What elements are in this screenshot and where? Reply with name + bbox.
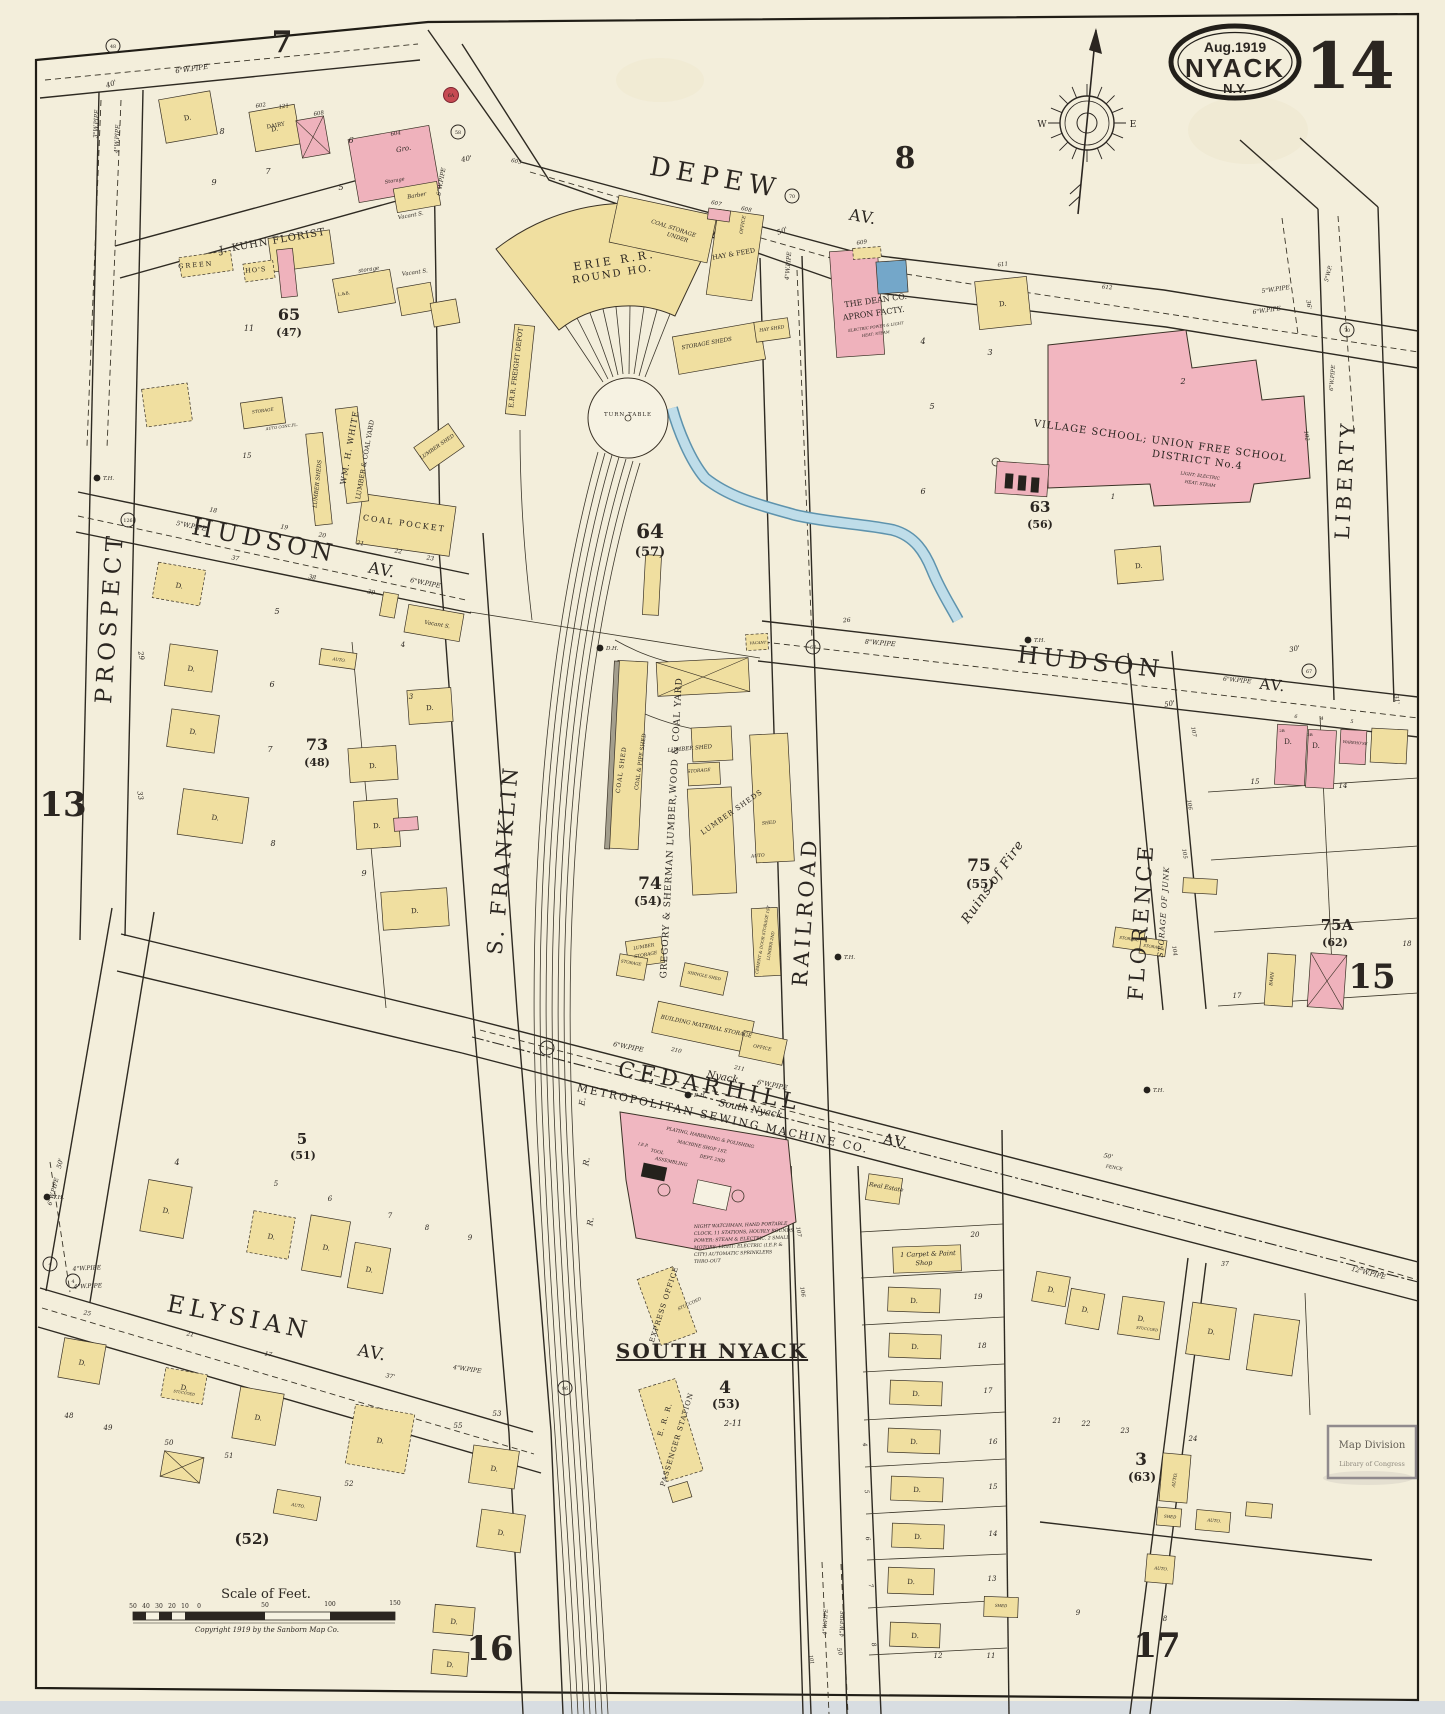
map-label: 4: [719, 1378, 731, 1398]
building-footprint: [1017, 475, 1026, 491]
map-label: 20: [970, 1231, 980, 1239]
paper-stain: [616, 58, 704, 102]
map-label: 14: [1339, 782, 1348, 790]
map-label: 2-11: [723, 1419, 742, 1428]
map-label: 11: [987, 1652, 996, 1660]
map-label: 53: [493, 1410, 502, 1418]
map-label: D.: [910, 1297, 918, 1305]
map-label: D.: [78, 1358, 87, 1367]
map-label: D.: [913, 1486, 921, 1494]
scale-label: Scale of Feet.: [221, 1587, 311, 1602]
svg-text:D.H.: D.H.: [605, 646, 619, 652]
svg-text:70: 70: [789, 194, 795, 200]
map-label: D.: [369, 762, 377, 771]
building-footprint: [853, 247, 882, 260]
svg-text:T.H.: T.H.: [1034, 638, 1045, 644]
map-label: 4: [1319, 716, 1323, 722]
map-label: D.: [911, 1632, 919, 1640]
map-label: Shop: [915, 1259, 933, 1268]
map-label: 8: [219, 127, 224, 136]
map-label: D.: [490, 1465, 499, 1474]
map-label: 7: [272, 25, 293, 60]
map-label: 37: [231, 554, 240, 562]
turntable: [588, 378, 668, 458]
map-label: THRO-OUT: [694, 1258, 722, 1265]
map-label: 21: [355, 539, 365, 547]
map-label: 14: [989, 1530, 998, 1538]
map-label: 22: [1081, 1420, 1091, 1428]
map-label: R.: [585, 1217, 596, 1228]
map-label: D.: [267, 1232, 276, 1241]
map-label: VACANT: [749, 640, 766, 646]
map-label: 24: [1188, 1435, 1198, 1443]
building-footprint: [430, 299, 460, 327]
map-label: 1: [1111, 493, 1115, 501]
map-label: 0: [197, 1603, 201, 1610]
map-label: 5: [297, 1130, 307, 1148]
map-label: 10: [181, 1603, 189, 1610]
map-label: 9: [361, 869, 366, 878]
building-footprint: [1030, 477, 1039, 493]
map-label: 2B: [1307, 732, 1313, 737]
map-label: 18: [209, 506, 218, 514]
building-footprint: [1004, 473, 1013, 489]
map-label: 63: [1030, 498, 1051, 516]
stamp-subtitle: Library of Congress: [1339, 1460, 1405, 1468]
map-label: 20: [168, 1603, 176, 1610]
building-footprint: [876, 260, 908, 294]
map-label: 40: [142, 1603, 150, 1610]
svg-text:T.H.: T.H.: [1153, 1088, 1164, 1094]
map-label: 6: [348, 136, 353, 145]
map-label: (62): [1322, 936, 1348, 949]
map-label: D.: [1312, 742, 1320, 750]
map-label: 9: [468, 1234, 473, 1242]
building-footprint: [687, 787, 736, 895]
map-label: 75: [967, 856, 991, 876]
svg-text:70: 70: [1344, 328, 1350, 334]
map-label: D.: [1047, 1285, 1056, 1294]
map-label: D.: [912, 1390, 920, 1398]
map-label: D.: [1135, 562, 1143, 571]
map-label: E.: [577, 1097, 587, 1108]
building-footprint: [656, 658, 750, 697]
map-label: 11: [244, 324, 254, 333]
map-label: 150: [389, 1600, 401, 1607]
map-label: 38: [308, 573, 317, 581]
map-label: 12: [934, 1652, 943, 1660]
svg-text:6A: 6A: [448, 93, 455, 99]
map-label: 6: [920, 487, 925, 496]
map-label: SHED: [995, 1603, 1008, 1608]
building-footprint: [296, 116, 330, 158]
svg-text:67: 67: [1306, 669, 1312, 675]
map-label: D.: [497, 1529, 506, 1538]
map-label: 51: [225, 1452, 234, 1460]
building-footprint: [397, 282, 435, 315]
map-label: D.: [999, 300, 1007, 309]
map-label: 55: [454, 1422, 463, 1430]
hydrant-symbol: D.H.: [685, 1092, 707, 1099]
map-label: 3: [409, 693, 414, 701]
hydrant-symbol: T.H.: [94, 475, 115, 482]
svg-text:48: 48: [110, 44, 116, 50]
map-label: 13: [988, 1575, 997, 1583]
map-label: 26: [842, 617, 851, 625]
compass-west-label: W: [1037, 120, 1047, 130]
fire-alarm-box-symbol: 6A: [444, 88, 459, 103]
map-label: 6: [269, 680, 274, 689]
svg-text:58: 58: [455, 130, 461, 136]
map-label: 39: [367, 588, 376, 596]
map-label: D.: [270, 124, 278, 133]
map-label: D.: [910, 1438, 918, 1446]
building-footprint: [1306, 729, 1337, 788]
map-label: 16: [466, 1629, 513, 1669]
svg-text:3: 3: [545, 1046, 548, 1052]
map-label: D.: [183, 113, 192, 122]
map-label: 65: [278, 305, 300, 324]
map-label: D.: [1284, 738, 1292, 746]
map-label: 7: [388, 1212, 393, 1220]
map-label: 23: [1120, 1427, 1130, 1435]
map-label: 15: [1348, 957, 1395, 997]
map-label: D.: [907, 1578, 915, 1586]
building-footprint: [394, 817, 419, 832]
map-label: 8: [1163, 1615, 1168, 1623]
map-label: 17: [264, 1350, 273, 1358]
map-label: 9: [1076, 1609, 1081, 1617]
map-label: 64: [636, 519, 664, 543]
building-footprint: [691, 726, 733, 762]
map-label: D.: [211, 814, 220, 823]
map-label: 15: [1251, 778, 1260, 786]
map-label: (57): [635, 545, 665, 560]
map-label: D.: [411, 907, 419, 916]
map-label: D.: [322, 1243, 331, 1252]
map-label: (47): [276, 326, 302, 339]
map-label: 75A: [1321, 916, 1354, 934]
map-label: D.: [914, 1533, 922, 1541]
map-label: 5: [1350, 719, 1353, 725]
map-label: 21: [185, 1330, 195, 1338]
map-label: 4: [919, 337, 925, 346]
map-label: 3: [987, 348, 992, 357]
map-state: N.Y.: [1223, 81, 1247, 96]
map-label: 3: [1135, 1450, 1147, 1470]
compass-east-label: E: [1130, 120, 1137, 130]
scan-edge-strip: [0, 1701, 1445, 1714]
hydrant-symbol: T.H.: [1025, 637, 1046, 644]
map-label: 37: [1221, 1261, 1229, 1268]
building-footprint: [1274, 724, 1307, 785]
map-label: D.: [446, 1661, 454, 1670]
map-label: 74: [638, 874, 662, 894]
map-label: 5: [338, 183, 343, 192]
map-label: 48: [64, 1412, 74, 1420]
map-label: 5: [274, 607, 279, 616]
map-label: TURN TABLE: [604, 412, 652, 418]
map-label: D.: [376, 1436, 385, 1445]
map-label: 612: [1102, 285, 1113, 292]
building-footprint: [1370, 728, 1408, 764]
svg-text:T.H.: T.H.: [844, 955, 855, 961]
map-label: D.: [1137, 1315, 1146, 1324]
map-label: SOUTH NYACK: [616, 1339, 808, 1363]
building-footprint: [142, 383, 193, 427]
paper-stain: [1188, 96, 1308, 164]
map-label: 6: [328, 1195, 333, 1203]
map-label: 50: [165, 1439, 174, 1447]
map-label: 52: [345, 1480, 354, 1488]
map-label: D.: [189, 728, 198, 737]
map-label: 73: [306, 735, 328, 754]
map-label: SHED: [762, 819, 777, 826]
map-label: D.: [911, 1343, 919, 1351]
map-label: D.: [254, 1413, 263, 1422]
map-label: D.: [426, 704, 434, 713]
map-label: 16: [989, 1438, 998, 1446]
building-footprint: [1245, 1502, 1272, 1518]
map-label: D.: [373, 822, 381, 831]
map-label: (51): [290, 1149, 316, 1162]
map-label: 8: [270, 839, 275, 848]
map-label: 5: [274, 1180, 279, 1188]
map-label: 9: [211, 178, 216, 187]
map-label: (63): [1128, 1470, 1156, 1484]
map-label: (52): [234, 1530, 269, 1548]
map-label: (53): [712, 1397, 740, 1411]
map-city: NYACK: [1185, 53, 1285, 83]
map-label: D.: [180, 1383, 189, 1392]
map-label: 19: [974, 1293, 983, 1301]
map-label: 49: [103, 1424, 113, 1432]
map-label: 21: [1052, 1417, 1062, 1425]
map-label: 17: [1133, 1626, 1180, 1666]
svg-text:T.H.: T.H.: [103, 476, 114, 482]
map-label: 5: [929, 402, 934, 411]
sheet-number: 14: [1305, 29, 1394, 104]
map-label: (54): [634, 894, 662, 908]
map-label: 17: [1233, 992, 1242, 1000]
sanborn-map-sheet: 7813151617DEPEWAV.HUDSONAV.HUDSONAV.PROS…: [0, 0, 1445, 1714]
building-footprint: [1183, 878, 1218, 895]
map-label: 15: [989, 1483, 998, 1491]
hydrant-symbol: T.H.: [44, 1194, 65, 1201]
building-footprint: [1246, 1314, 1299, 1376]
building-footprint: [642, 555, 661, 616]
building-footprint: [1307, 953, 1347, 1009]
map-label: 15: [243, 452, 252, 460]
hydrant-symbol: T.H.: [1144, 1087, 1165, 1094]
map-label: AV.: [1258, 675, 1287, 696]
map-label: 4: [400, 641, 405, 649]
building-footprint: [1339, 729, 1367, 764]
hydrant-symbol: D.H.: [597, 645, 619, 652]
map-label: D.: [162, 1206, 171, 1215]
map-label: D.: [187, 665, 196, 674]
map-label: D.: [365, 1265, 374, 1274]
map-label: 13: [39, 785, 86, 825]
map-label: 2: [1179, 377, 1185, 386]
map-label: D.: [1081, 1305, 1090, 1314]
map-label: R.: [581, 1157, 592, 1168]
map-label: 50: [261, 1602, 269, 1609]
map-label: 100: [324, 1601, 336, 1608]
map-label: D.: [175, 581, 184, 590]
map-label: 19: [280, 523, 289, 531]
map-canvas: 7813151617DEPEWAV.HUDSONAV.HUDSONAV.PROS…: [0, 0, 1445, 1714]
map-label: (48): [304, 756, 330, 769]
stamp-title: Map Division: [1339, 1440, 1406, 1451]
svg-text:96: 96: [562, 1386, 568, 1392]
map-label: 17: [984, 1387, 993, 1395]
map-label: 18: [1403, 940, 1412, 948]
svg-text:126: 126: [123, 518, 132, 524]
svg-text:D.H.: D.H.: [693, 1093, 707, 1099]
svg-text:67: 67: [810, 645, 816, 651]
svg-text:T.H.: T.H.: [53, 1195, 64, 1201]
map-label: 18: [978, 1342, 987, 1350]
hydrant-symbol: T.H.: [835, 954, 856, 961]
map-label: 8: [895, 141, 916, 176]
map-label: D.: [450, 1618, 458, 1627]
map-label: D.: [1207, 1328, 1216, 1337]
map-label: 4: [173, 1158, 179, 1167]
svg-text:4: 4: [71, 1279, 74, 1285]
map-label: 8: [425, 1224, 430, 1232]
map-label: 30: [155, 1603, 163, 1610]
copyright-line: Copyright 1919 by the Sanborn Map Co.: [195, 1626, 339, 1634]
map-label: 50: [129, 1603, 137, 1610]
svg-text:4: 4: [48, 1262, 51, 1268]
map-label: (56): [1027, 518, 1053, 531]
map-label: 2B: [1279, 728, 1285, 733]
